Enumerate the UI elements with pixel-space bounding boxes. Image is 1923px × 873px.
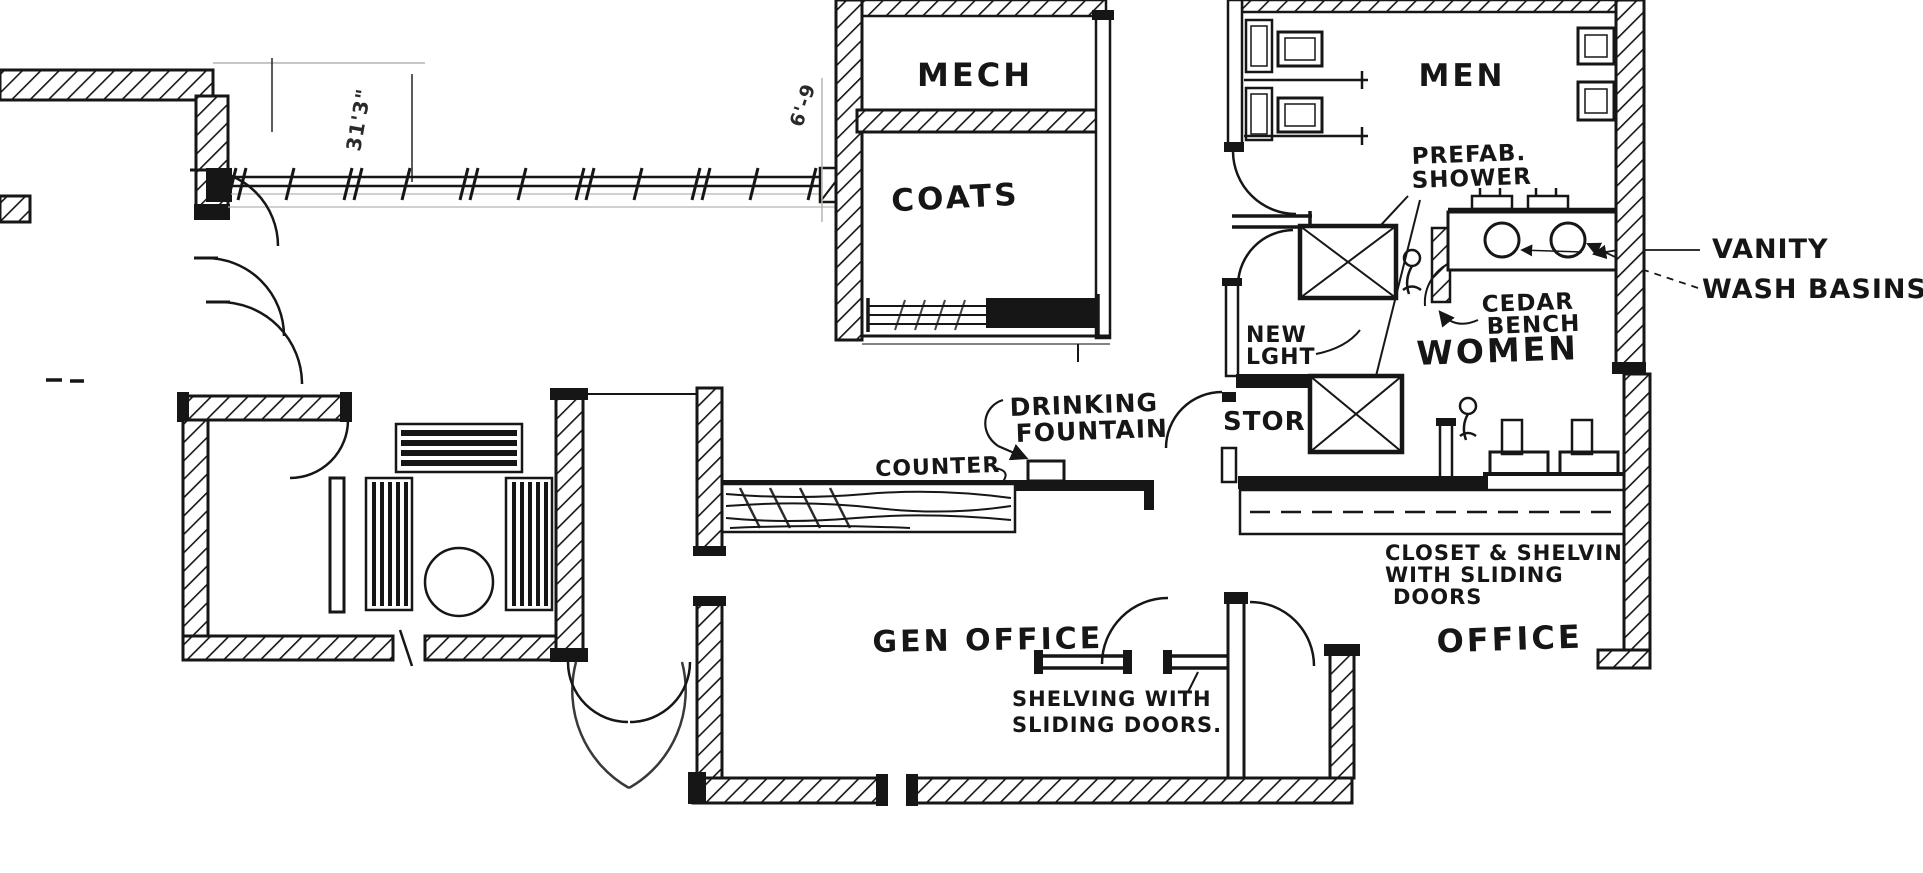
- coat-rod-scribble: [986, 298, 1096, 328]
- door-swing-gen-office: [1102, 598, 1168, 664]
- men-room-label: MEN: [1419, 58, 1506, 94]
- prefab-shower-label-2: SHOWER: [1411, 164, 1532, 194]
- wall-top: [850, 0, 1106, 16]
- wall-east-upper: [1616, 0, 1644, 368]
- wall-west-upper: [697, 388, 722, 553]
- women-shower: [1310, 376, 1402, 452]
- men-shower: [1300, 226, 1396, 298]
- wall-cap: [1222, 392, 1236, 402]
- floor-plan-canvas: 31'3": [0, 0, 1923, 873]
- wall-east: [1096, 14, 1110, 338]
- drinking-fountain: [1028, 461, 1064, 481]
- mullion-ticks: [228, 168, 816, 200]
- urinal-2: [1578, 82, 1614, 120]
- gen-office-label: GEN OFFICE: [872, 621, 1103, 660]
- wall-east-lower: [1624, 374, 1650, 668]
- round-table: [425, 548, 493, 616]
- wall-west: [1228, 0, 1242, 148]
- wall-south-right: [912, 778, 1352, 803]
- door-swing-office: [1250, 602, 1314, 666]
- wall-cap: [876, 774, 888, 806]
- men-toilet-2: [1246, 88, 1322, 140]
- wall: [1222, 448, 1236, 482]
- stor-room-label: STOR.: [1223, 407, 1317, 437]
- corridor-area: DRINKING FOUNTAIN COUNTER: [700, 388, 1168, 532]
- men-toilet-stalls: [1244, 20, 1368, 145]
- closet-label-1: CLOSET & SHELVING: [1385, 541, 1641, 565]
- wash-basins-label: WASH BASINS: [1702, 274, 1923, 305]
- wall: [183, 420, 208, 660]
- closet-shelving: CLOSET & SHELVING WITH SLIDING DOORS: [1238, 476, 1641, 609]
- wall-between-offices: [1228, 598, 1244, 794]
- women-toilet-1: [1490, 420, 1548, 474]
- wall-cap: [194, 204, 230, 220]
- wall-cap: [693, 596, 726, 606]
- wall-cap: [688, 772, 706, 804]
- entry-double-doors: [568, 662, 690, 788]
- wall-cap: [550, 388, 588, 400]
- vanity-label: VANITY: [1712, 234, 1829, 265]
- wall-stub-left-edge: [0, 196, 30, 222]
- mech-coats-block: MECH COATS 6'-9: [786, 0, 1114, 362]
- counter: [722, 484, 1015, 532]
- coats-room-label: COATS: [890, 177, 1020, 220]
- dimension-mech-side: 6'-9: [786, 81, 821, 130]
- floor-plan-sketch: 31'3": [0, 0, 1923, 873]
- wall-cap: [177, 392, 189, 422]
- new-lght-label-2: LGHT: [1246, 345, 1316, 370]
- vanity-area: VANITY WASH BASINS CEDAR BENCH: [1425, 188, 1923, 340]
- closet-label-2: WITH SLIDING: [1385, 563, 1564, 587]
- mech-room-label: MECH: [917, 56, 1033, 94]
- drinking-fountain-label-2: FOUNTAIN: [1015, 414, 1168, 448]
- wall-cap: [1324, 644, 1360, 656]
- door-swing-women-entry: [1238, 230, 1293, 284]
- wall-cap: [1224, 592, 1248, 604]
- coat-rod: [868, 294, 1098, 336]
- vanity-counter: [1448, 212, 1618, 270]
- dimension-left-wing: 31'3": [341, 86, 376, 153]
- leader-line: [1440, 312, 1478, 324]
- window-wall: [206, 168, 846, 207]
- shelving-label-2: SLIDING DOORS.: [1012, 713, 1222, 737]
- bench-left: [366, 478, 412, 610]
- wall-stub: [1144, 480, 1154, 510]
- door-swing-men: [1233, 152, 1296, 214]
- left-wing: 31'3": [0, 58, 846, 384]
- counter-label: COUNTER: [875, 453, 1001, 482]
- men-toilet-1: [1246, 20, 1322, 72]
- closet-back-wall: [1238, 476, 1488, 489]
- wall-cap: [906, 774, 918, 806]
- shelving-label-1: SHELVING WITH: [1012, 687, 1212, 711]
- door-swing-stor: [1166, 392, 1222, 448]
- women-room-label: WOMEN: [1416, 328, 1580, 373]
- wall-cap: [340, 392, 352, 422]
- office-label: OFFICE: [1436, 617, 1583, 660]
- wall-corner-stub: [1598, 650, 1650, 668]
- wall-cap: [1612, 362, 1646, 374]
- wall-south-left: [693, 778, 885, 803]
- wall-cap: [1092, 10, 1114, 20]
- wall-west-lower: [697, 598, 722, 793]
- wall-west: [836, 0, 862, 340]
- wall-cap: [550, 648, 588, 662]
- wall: [425, 636, 560, 660]
- lower-left-room: [177, 388, 720, 666]
- wall-cap: [1224, 142, 1244, 152]
- wall: [1226, 284, 1238, 376]
- urinal-1: [1578, 28, 1614, 64]
- bench-right: [506, 478, 552, 610]
- wall-cap: [1436, 418, 1456, 426]
- women-toilet-2: [1560, 420, 1618, 474]
- wall-top: [1242, 0, 1616, 12]
- faucet-fixture-2: [1528, 188, 1568, 209]
- wall-return: [1330, 652, 1354, 778]
- partition-post: [330, 478, 344, 612]
- wall-top-left: [0, 70, 213, 100]
- wall-cap: [693, 546, 726, 556]
- tick-marks: [46, 380, 84, 381]
- door-tick: [400, 630, 412, 666]
- person-figure-women: [1460, 398, 1476, 440]
- closet-label-3: DOORS: [1393, 585, 1482, 609]
- leader-line: [985, 400, 1003, 446]
- wall: [183, 396, 348, 420]
- wall: [183, 636, 393, 660]
- leader-line-dashed: [1638, 268, 1698, 288]
- door-swing: [290, 420, 348, 478]
- wall-divider: [857, 110, 1107, 132]
- east-walls: [1598, 0, 1650, 668]
- wall: [556, 394, 583, 660]
- leader-line: [1316, 330, 1360, 354]
